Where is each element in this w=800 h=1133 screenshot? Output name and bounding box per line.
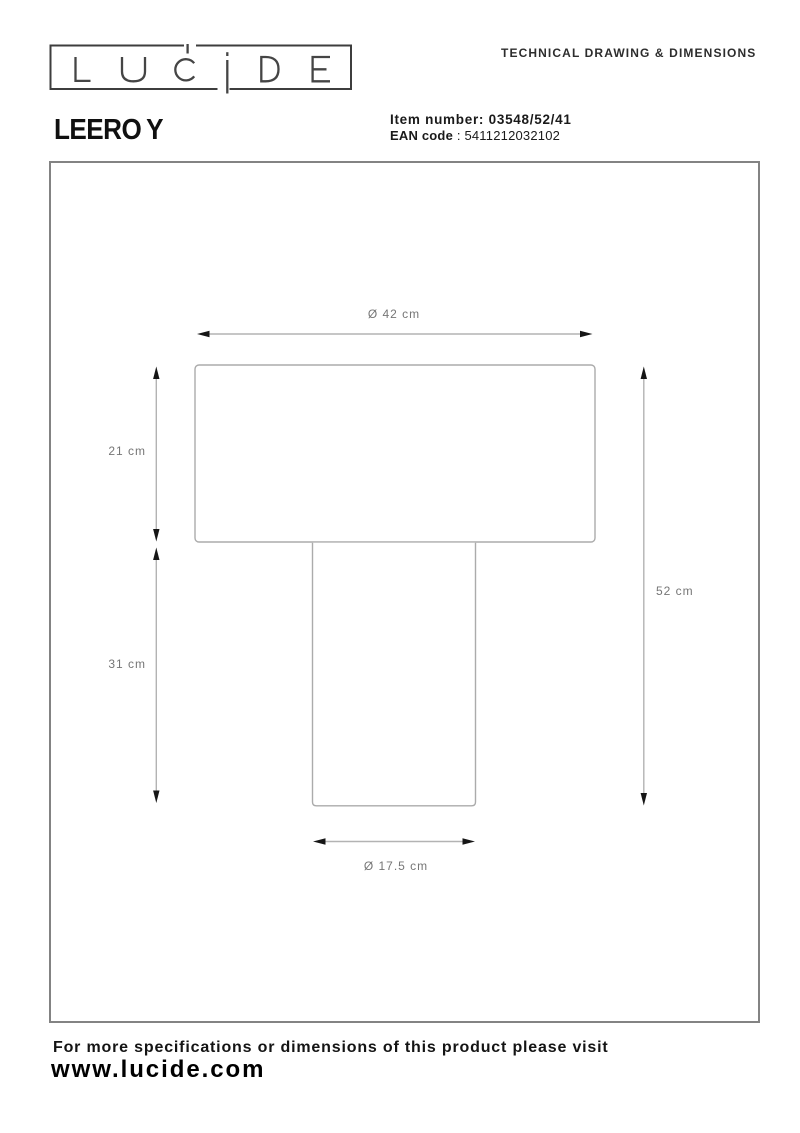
svg-text:Ø 42 cm: Ø 42 cm (368, 307, 420, 321)
svg-text:Ø 17.5 cm: Ø 17.5 cm (364, 859, 428, 873)
svg-text:21 cm: 21 cm (108, 444, 146, 458)
svg-text:52 cm: 52 cm (656, 584, 694, 598)
svg-text:31 cm: 31 cm (108, 657, 146, 671)
